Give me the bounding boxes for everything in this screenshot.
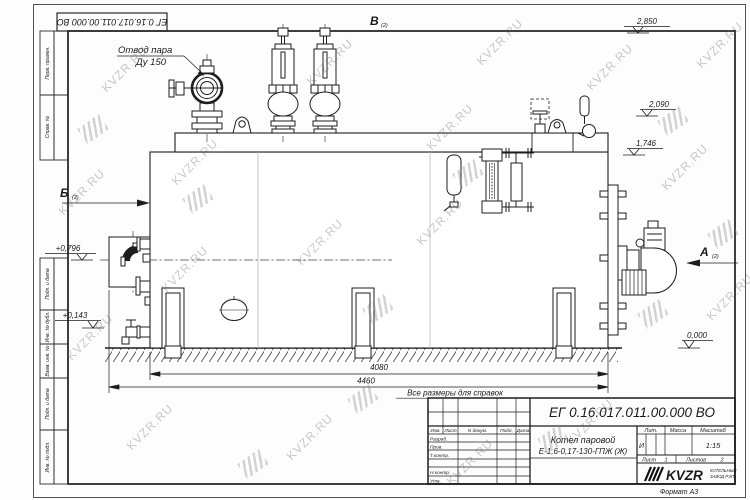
drain-valve (126, 327, 137, 337)
doc-number: ЕГ 0.16.017.011.00.000 ВО (549, 405, 715, 420)
sign-row-prov: Пров. (430, 445, 443, 451)
burner-junction-box (644, 228, 665, 250)
view-a-ref: (2) (712, 254, 719, 260)
view-a-label: А (699, 245, 709, 259)
sheet-number: 1 (664, 458, 667, 464)
burner-elbow (636, 239, 644, 247)
kvzr-logo-sub1: КОТЕЛЬНЫЙ (710, 468, 736, 473)
kvzr-logo-sub2: ЗАВОД РЭП (710, 474, 735, 479)
level-2850: 2,850 (636, 17, 658, 26)
level-0796: +0,796 (56, 244, 81, 253)
view-v-label: В (370, 14, 379, 28)
view-v-ref: (2) (381, 23, 388, 29)
sign-row-razrab: Разраб. (430, 437, 447, 443)
callout-line1: Отвод пара (118, 45, 172, 56)
frame-label: Взам. инв. № (45, 345, 51, 377)
sign-row-tkontr: Т.контр. (430, 453, 449, 459)
view-v-marker: В (2) (370, 14, 388, 29)
kvzr-logo: KVZR КОТЕЛЬНЫЙ ЗАВОД РЭП (645, 467, 736, 483)
sheet-label: Лист (641, 458, 657, 464)
burner-assembly (618, 221, 677, 295)
kvzr-logo-text: KVZR (666, 468, 703, 483)
drawing-sheet: KVZR.RU KVZR.RU KVZR.RU KVZR.RU KVZR.RU … (0, 0, 750, 500)
frame-label: Подп. и дата (45, 388, 51, 420)
scale-value: 1:15 (706, 441, 721, 450)
drum-fittings (531, 96, 596, 138)
product-code: Е-1,6-0,17-130-ГПЖ (Ж) (539, 447, 628, 456)
view-b-ref: (2) (72, 195, 79, 201)
frame-label: Инв. № подл. (45, 441, 51, 472)
format-label: Формат А3 (660, 489, 698, 496)
sign-col-izm: Изм. (430, 428, 440, 434)
sheets-number: 2 (719, 458, 723, 464)
sheets-label: Листов (685, 458, 706, 464)
gauge-top-valve (482, 149, 502, 161)
view-b-marker: Б (2) (60, 186, 150, 207)
gauge-bottom-valve (482, 201, 502, 213)
boiler-body (150, 133, 608, 348)
top-stamp-number: ЕГ 0.16.017.011.00.000 ВО (57, 17, 168, 27)
safety-valve-1 (268, 28, 298, 133)
sign-col-doc: N докум. (468, 428, 487, 434)
view-b-label: Б (60, 186, 69, 200)
separator-vessel (447, 155, 461, 195)
pressure-gauge (580, 96, 589, 116)
level-2090: 2,090 (648, 100, 670, 109)
frame-label: Инв. № дубл. (45, 312, 51, 343)
level-0143: +0,143 (63, 311, 88, 320)
lifting-lug (233, 117, 251, 133)
scale-label: Масштаб (700, 428, 727, 434)
callout-line2: Ду 150 (135, 57, 167, 68)
sign-col-sign: Подп. (500, 428, 513, 434)
frame-label: Подп. и дата (45, 268, 51, 300)
reference-note: Все размеры для справок (396, 389, 514, 399)
litera-value: И (639, 443, 645, 450)
mass-label: Масса (670, 428, 686, 434)
safety-valve-2 (310, 28, 340, 133)
dim-total-length: 4460 (357, 377, 375, 386)
level-1746: 1,746 (636, 139, 657, 148)
frame-label: Справ. № (45, 115, 51, 138)
product-name: Котел паровой (551, 435, 616, 445)
dim-inner-length: 4080 (370, 363, 388, 372)
frame-label: Перв. примен. (45, 46, 51, 79)
siphon-loop (583, 125, 596, 138)
sight-indicator (511, 163, 522, 201)
litera-label: Лит. (644, 428, 658, 434)
note-text: Все размеры для справок (407, 389, 504, 398)
sign-col-list: Лист (443, 428, 456, 434)
steam-outlet-callout: Отвод пара Ду 150 (117, 45, 204, 76)
sign-col-date: Дата (516, 428, 530, 434)
boiler-drawing: Перв. примен. Справ. № Подп. и дата Инв.… (0, 0, 750, 500)
sign-row-utv: Утв. (430, 479, 441, 485)
view-a-marker: А (2) (686, 245, 738, 267)
sign-row-nkontr: Н.контр. (430, 470, 450, 476)
level-0000: 0,000 (687, 331, 708, 340)
steam-outlet-valve (169, 60, 222, 133)
